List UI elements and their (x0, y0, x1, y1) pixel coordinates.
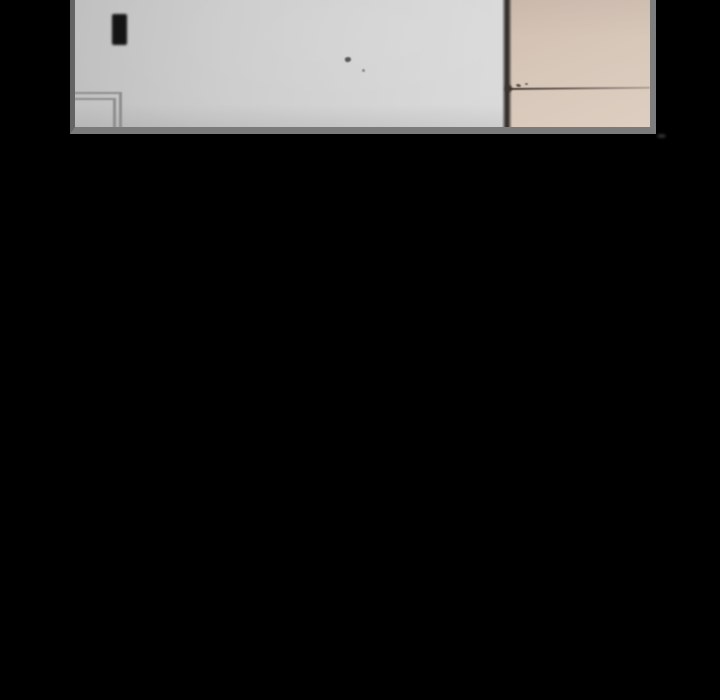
webtoon-reader-area (0, 0, 720, 700)
door-frame-inner-line (75, 98, 116, 127)
border-corner-smudge (657, 134, 666, 138)
comic-panel (70, 0, 656, 134)
seam-speck-2 (525, 83, 528, 85)
right-wall (508, 0, 650, 127)
panel-artwork (75, 0, 650, 127)
wall-speck-small (362, 69, 365, 72)
wall-corner-line (502, 0, 512, 127)
page-background: { "page": { "background_color": "#000000… (0, 0, 720, 700)
light-switch (112, 14, 127, 45)
left-wall (75, 0, 508, 127)
seam-start-blob (505, 85, 512, 92)
